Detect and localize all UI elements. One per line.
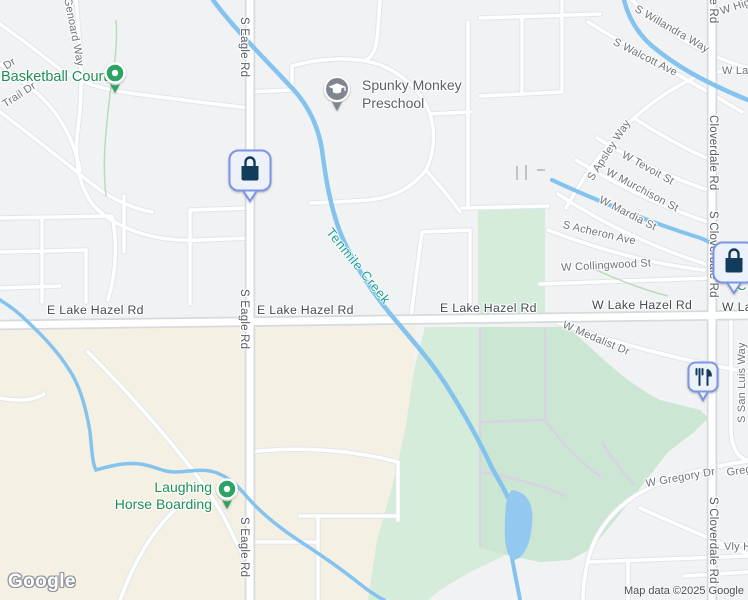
shopping-bag-pin-right[interactable] [712, 241, 748, 300]
pin-center-icon [224, 486, 230, 492]
poi-label-laughing-horse-line1[interactable]: Laughing [122, 479, 212, 496]
shopping-bag-pin[interactable] [228, 149, 272, 208]
poi-label-basketball-court[interactable]: Basketball Court [1, 69, 107, 86]
pin-tail [222, 500, 232, 509]
map-viewport[interactable]: Genoard Way Dr Trail Dr S Eagle Rd S Eag… [0, 0, 748, 600]
map-attribution: Map data ©2025 Google [624, 585, 744, 597]
poi-pin-basketball-court[interactable] [102, 61, 128, 100]
poi-label-laughing-horse-line2[interactable]: Horse Boarding [100, 496, 212, 513]
google-logo[interactable]: Google [8, 571, 76, 593]
pin-center-icon [112, 70, 118, 76]
pin-body [689, 363, 718, 392]
poi-label-spunky-monkey-line2[interactable]: Preschool [362, 95, 424, 112]
pin-tail [110, 84, 120, 93]
restaurant-pin[interactable] [687, 361, 719, 407]
poi-pin-laughing-horse[interactable] [214, 477, 240, 516]
residential-area [0, 326, 416, 600]
pin-tail [332, 102, 342, 112]
poi-label-spunky-monkey-line1[interactable]: Spunky Monkey [362, 77, 462, 94]
school-pin-spunky-monkey[interactable] [322, 75, 352, 118]
